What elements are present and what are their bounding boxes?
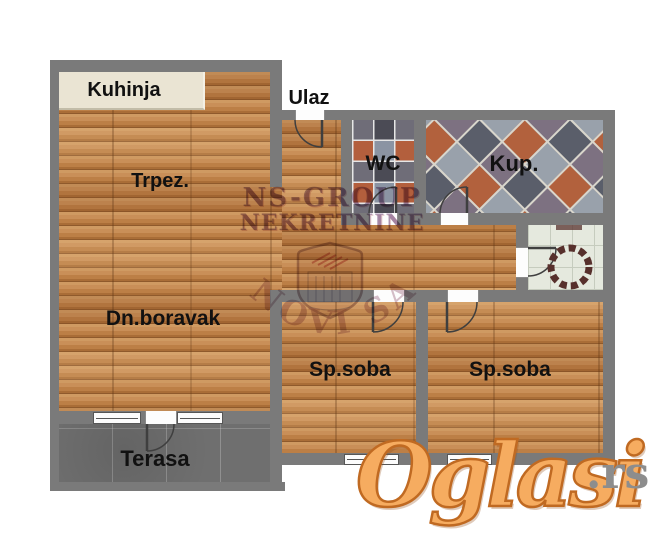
door-opening-bathroom <box>440 213 469 225</box>
door-opening-bedroom1 <box>373 290 405 302</box>
room-label-living: Dn.boravak <box>106 307 220 331</box>
room-label-bathroom: Kup. <box>490 151 539 177</box>
room-label-kitchen: Kuhinja <box>87 79 160 102</box>
wall-left <box>50 60 59 491</box>
room-label-wc: WC <box>366 152 401 176</box>
agency-watermark: NS-GROUP NEKRETNINE <box>232 184 432 236</box>
room-label-bedroom2: Sp.soba <box>469 358 551 382</box>
door-opening-loggia <box>516 247 528 278</box>
door-opening-terrace <box>145 411 177 424</box>
room-label-entrance: Ulaz <box>288 87 329 110</box>
agency-watermark-line2: NEKRETNINE <box>232 212 432 236</box>
room-label-dining: Trpez. <box>131 170 189 193</box>
wall-corridor-bedrooms <box>270 290 615 302</box>
wall-top-left <box>50 60 282 72</box>
room-loggia-floor <box>528 225 603 290</box>
wall-right <box>603 110 615 465</box>
room-label-terrace: Terasa <box>120 446 189 472</box>
agency-watermark-line1: NS-GROUP <box>232 184 432 212</box>
door-opening-entrance <box>295 110 325 120</box>
floor-plan: Kuhinja Ulaz Trpez. WC Kup. Dn.boravak S… <box>0 0 662 543</box>
room-label-bedroom1: Sp.soba <box>309 358 391 382</box>
site-watermark-tld: .rs <box>586 452 649 496</box>
wall-terrace-bottom <box>50 482 285 491</box>
window-living-1 <box>93 412 141 424</box>
door-opening-bedroom2 <box>447 290 479 302</box>
room-living-dining-floor <box>59 72 282 415</box>
wall-living-hall <box>270 60 282 187</box>
wall-top-right <box>282 110 615 120</box>
window-living-2 <box>177 412 223 424</box>
